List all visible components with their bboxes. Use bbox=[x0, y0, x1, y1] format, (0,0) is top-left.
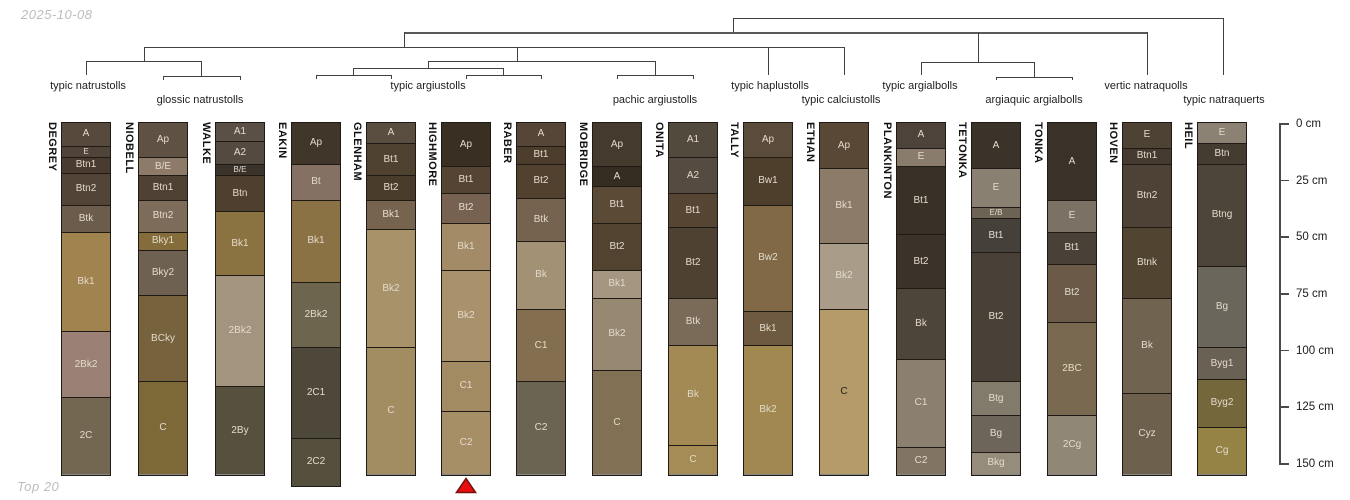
horizon-layer: Bt2 bbox=[517, 164, 565, 198]
dendrogram-branch-horizontal bbox=[466, 75, 542, 76]
dendrogram-branch-vertical bbox=[978, 32, 979, 62]
horizon-label: 2C bbox=[80, 431, 93, 441]
horizon-label: Bw1 bbox=[758, 176, 777, 186]
soil-profile-figure: 2025-10-08 Top 20 typic natrustollsgloss… bbox=[0, 0, 1350, 500]
dendrogram-branch-vertical bbox=[1223, 18, 1224, 75]
horizon-label: Bt1 bbox=[533, 150, 548, 160]
horizon-label: Btn2 bbox=[76, 184, 97, 194]
horizon-label: Bk bbox=[1141, 341, 1153, 351]
horizon-layer: E bbox=[897, 148, 945, 166]
horizon-layer: Btng bbox=[1198, 164, 1246, 266]
cluster-group-label: typic haplustolls bbox=[731, 80, 809, 92]
horizon-layer: Bk1 bbox=[367, 200, 415, 229]
dendrogram-branch-vertical bbox=[428, 61, 429, 68]
horizon-label: Cyz bbox=[1138, 429, 1155, 439]
horizon-label: Bk bbox=[687, 390, 699, 400]
horizon-label: A bbox=[993, 141, 1000, 151]
horizon-layer: Bg bbox=[1198, 266, 1246, 348]
horizon-layer: Bw2 bbox=[744, 205, 792, 312]
horizon-layer: C1 bbox=[897, 359, 945, 447]
horizon-label: C bbox=[689, 455, 696, 465]
horizon-layer: Ap bbox=[744, 123, 792, 157]
horizon-layer: Btk bbox=[517, 198, 565, 241]
horizon-layer: E/B bbox=[972, 207, 1020, 218]
horizon-label: E bbox=[1144, 130, 1151, 140]
horizon-layer: Ap bbox=[442, 123, 490, 166]
horizon-label: Bk2 bbox=[835, 271, 852, 281]
dendrogram-branch-horizontal bbox=[921, 62, 1035, 63]
profile-name-label: MOBRIDGE bbox=[577, 122, 589, 187]
horizon-layer: 2Bk2 bbox=[62, 331, 110, 397]
horizon-layer: A bbox=[897, 123, 945, 148]
horizon-label: Bt2 bbox=[913, 257, 928, 267]
horizon-label: 2Cg bbox=[1063, 440, 1081, 450]
cluster-group-label: glossic natrustolls bbox=[157, 94, 244, 106]
dendrogram-branch-vertical bbox=[844, 47, 845, 75]
depth-axis-tick-label: 125 cm bbox=[1296, 401, 1334, 413]
horizon-label: Bk2 bbox=[759, 405, 776, 415]
horizon-label: 2Bk2 bbox=[305, 310, 328, 320]
horizon-label: C bbox=[840, 387, 847, 397]
profile-column: ABt1Bt2BtkBkC1C2 bbox=[516, 122, 566, 476]
horizon-label: Bky1 bbox=[152, 236, 174, 246]
horizon-label: Bt1 bbox=[1064, 243, 1079, 253]
horizon-layer: Bw1 bbox=[744, 157, 792, 205]
horizon-label: A bbox=[538, 129, 545, 139]
horizon-layer: C bbox=[367, 347, 415, 474]
horizon-layer: Bt1 bbox=[669, 193, 717, 227]
horizon-label: Ap bbox=[460, 140, 472, 150]
horizon-layer: C2 bbox=[517, 381, 565, 474]
horizon-layer: C1 bbox=[517, 309, 565, 382]
dendrogram-branch-vertical bbox=[316, 75, 317, 79]
depth-axis-tick bbox=[1279, 180, 1289, 182]
horizon-label: C1 bbox=[460, 381, 473, 391]
horizon-layer: E bbox=[1198, 123, 1246, 143]
horizon-label: Ap bbox=[838, 141, 850, 151]
horizon-layer: Btn1 bbox=[1123, 148, 1171, 164]
horizon-layer: A bbox=[593, 166, 641, 186]
horizon-label: Bk1 bbox=[835, 201, 852, 211]
horizon-layer: Bk bbox=[517, 241, 565, 309]
dendrogram-branch-vertical bbox=[517, 47, 518, 61]
horizon-layer: Bk2 bbox=[744, 345, 792, 474]
horizon-layer: BCky bbox=[139, 295, 187, 381]
horizon-label: Bg bbox=[990, 429, 1002, 439]
profile-column: ABt1Bt2Bk1Bk2C bbox=[366, 122, 416, 476]
horizon-label: Btg bbox=[988, 394, 1003, 404]
dendrogram-branch-vertical bbox=[996, 77, 997, 80]
horizon-layer: 2Bk2 bbox=[292, 282, 340, 348]
depth-axis-tick-label: 75 cm bbox=[1296, 288, 1327, 300]
horizon-layer: Ap bbox=[820, 123, 868, 168]
horizon-label: Byg1 bbox=[1211, 359, 1234, 369]
horizon-layer: E bbox=[62, 146, 110, 157]
horizon-label: Byg2 bbox=[1211, 398, 1234, 408]
profile-column: ApBk1Bk2C bbox=[819, 122, 869, 476]
horizon-layer: Bk1 bbox=[62, 232, 110, 332]
dendrogram-branch-vertical bbox=[733, 18, 734, 32]
depth-axis-tick bbox=[1279, 293, 1289, 295]
dendrogram-branch-vertical bbox=[541, 75, 542, 79]
horizon-label: Ap bbox=[762, 135, 774, 145]
profile-column: AEBtn1Btn2BtkBk12Bk22C bbox=[61, 122, 111, 476]
horizon-layer: Btnk bbox=[1123, 227, 1171, 297]
horizon-layer: A1 bbox=[216, 123, 264, 141]
horizon-layer: 2By bbox=[216, 386, 264, 474]
horizon-layer: Bt bbox=[292, 164, 340, 200]
horizon-layer: B/E bbox=[216, 164, 264, 175]
horizon-label: Bkg bbox=[987, 458, 1004, 468]
profile-name-label: HIGHMORE bbox=[426, 122, 438, 187]
horizon-layer: Bt1 bbox=[593, 186, 641, 222]
horizon-layer: Bk bbox=[669, 345, 717, 445]
dendrogram-branch-vertical bbox=[921, 62, 922, 75]
horizon-layer: C bbox=[593, 370, 641, 474]
horizon-layer: Btn2 bbox=[1123, 164, 1171, 227]
profile-name-label: TALLY bbox=[728, 122, 740, 158]
horizon-label: C2 bbox=[915, 456, 928, 466]
horizon-label: Bt2 bbox=[458, 203, 473, 213]
horizon-label: Bt1 bbox=[609, 200, 624, 210]
horizon-label: A bbox=[1069, 157, 1076, 167]
horizon-layer: Bt1 bbox=[367, 143, 415, 175]
horizon-label: Btn1 bbox=[1137, 151, 1158, 161]
horizon-layer: C bbox=[820, 309, 868, 474]
horizon-label: A1 bbox=[687, 135, 699, 145]
horizon-label: Btn2 bbox=[1137, 191, 1158, 201]
dendrogram-branch-vertical bbox=[353, 68, 354, 75]
dendrogram-branch-vertical bbox=[503, 68, 504, 75]
horizon-layer: A bbox=[1048, 123, 1096, 200]
horizon-layer: Bk1 bbox=[442, 223, 490, 271]
profile-name-label: RABER bbox=[501, 122, 513, 164]
horizon-layer: C2 bbox=[442, 411, 490, 474]
horizon-label: C2 bbox=[535, 423, 548, 433]
dendrogram-branch-horizontal bbox=[86, 61, 202, 62]
cluster-group-label: argiaquic argialbolls bbox=[985, 94, 1082, 106]
dendrogram-branch-vertical bbox=[1147, 32, 1148, 75]
dendrogram-branch-vertical bbox=[404, 32, 405, 47]
depth-axis-tick bbox=[1279, 236, 1289, 238]
horizon-layer: Bt1 bbox=[517, 146, 565, 164]
horizon-label: C bbox=[387, 406, 394, 416]
horizon-layer: Btg bbox=[972, 381, 1020, 415]
horizon-label: Cg bbox=[1216, 446, 1229, 456]
cluster-group-label: typic argiustolls bbox=[390, 80, 465, 92]
horizon-layer: A2 bbox=[669, 157, 717, 193]
horizon-label: Btk bbox=[534, 215, 548, 225]
horizon-layer: Btn1 bbox=[139, 175, 187, 200]
depth-axis-tick-label: 0 cm bbox=[1296, 118, 1321, 130]
horizon-layer: C2 bbox=[897, 447, 945, 474]
horizon-layer: Bt1 bbox=[897, 166, 945, 234]
horizon-label: Bg bbox=[1216, 302, 1228, 312]
horizon-label: Bk1 bbox=[457, 242, 474, 252]
profile-name-label: ONITA bbox=[653, 122, 665, 158]
horizon-layer: Bt2 bbox=[367, 175, 415, 200]
profile-name-label: NIOBELL bbox=[123, 122, 135, 174]
profile-column: AEBt1Bt22BC2Cg bbox=[1047, 122, 1097, 476]
horizon-label: A2 bbox=[687, 171, 699, 181]
dendrogram-branch-vertical bbox=[86, 61, 87, 75]
depth-axis-tick bbox=[1279, 463, 1289, 465]
dendrogram-branch-vertical bbox=[240, 76, 241, 80]
dendrogram-branch-vertical bbox=[693, 75, 694, 79]
horizon-layer: Bt1 bbox=[972, 218, 1020, 252]
horizon-label: Ap bbox=[611, 140, 623, 150]
horizon-label: E bbox=[993, 183, 1000, 193]
horizon-layer: 2Cg bbox=[1048, 415, 1096, 474]
horizon-layer: 2C2 bbox=[292, 438, 340, 486]
cluster-group-label: vertic natraquolls bbox=[1104, 80, 1187, 92]
horizon-layer: A bbox=[62, 123, 110, 146]
horizon-label: Btn2 bbox=[153, 211, 174, 221]
dendrogram-branch-vertical bbox=[617, 75, 618, 79]
dendrogram-branch-horizontal bbox=[353, 68, 504, 69]
horizon-layer: Btk bbox=[669, 298, 717, 346]
dendrogram-branch-vertical bbox=[163, 76, 164, 80]
horizon-label: B/E bbox=[155, 162, 171, 172]
dendrogram-branch-horizontal bbox=[617, 75, 694, 76]
dendrogram-branch-horizontal bbox=[144, 47, 845, 48]
cluster-group-label: pachic argiustolls bbox=[613, 94, 697, 106]
horizon-label: Bk2 bbox=[608, 329, 625, 339]
horizon-label: Bt2 bbox=[609, 242, 624, 252]
horizon-label: Bk1 bbox=[231, 239, 248, 249]
horizon-layer: C1 bbox=[442, 361, 490, 411]
dendrogram-branch-horizontal bbox=[428, 61, 656, 62]
profile-name-label: TETONKA bbox=[956, 122, 968, 178]
horizon-layer: Cyz bbox=[1123, 393, 1171, 475]
horizon-label: Bk bbox=[915, 319, 927, 329]
horizon-layer: Bt2 bbox=[442, 193, 490, 222]
horizon-label: Bt2 bbox=[685, 258, 700, 268]
horizon-label: Bt1 bbox=[913, 196, 928, 206]
horizon-layer: Cg bbox=[1198, 427, 1246, 475]
horizon-label: Btn1 bbox=[153, 183, 174, 193]
horizon-layer: Bt2 bbox=[897, 234, 945, 288]
dendrogram-branch-horizontal bbox=[316, 75, 392, 76]
horizon-layer: Bk2 bbox=[820, 243, 868, 309]
date-label: 2025-10-08 bbox=[21, 7, 93, 22]
cluster-group-label: typic argialbolls bbox=[882, 80, 957, 92]
depth-axis-tick-label: 50 cm bbox=[1296, 231, 1327, 243]
horizon-layer: Btn2 bbox=[62, 173, 110, 205]
horizon-layer: C bbox=[669, 445, 717, 474]
horizon-label: Ap bbox=[157, 135, 169, 145]
profile-name-label: TONKA bbox=[1032, 122, 1044, 163]
horizon-label: Btnk bbox=[1137, 258, 1157, 268]
horizon-layer: E bbox=[1123, 123, 1171, 148]
cluster-group-label: typic natraquerts bbox=[1183, 94, 1264, 106]
horizon-layer: Bk1 bbox=[292, 200, 340, 282]
horizon-layer: A bbox=[972, 123, 1020, 168]
horizon-label: Bky2 bbox=[152, 268, 174, 278]
profile-name-label: PLANKINTON bbox=[881, 122, 893, 199]
depth-axis-tick bbox=[1279, 406, 1289, 408]
horizon-label: A2 bbox=[234, 148, 246, 158]
horizon-layer: Byg1 bbox=[1198, 347, 1246, 379]
horizon-label: 2C1 bbox=[307, 388, 325, 398]
profile-column: ApABt1Bt2Bk1Bk2C bbox=[592, 122, 642, 476]
profile-name-label: EAKIN bbox=[276, 122, 288, 159]
horizon-layer: Bt1 bbox=[442, 166, 490, 193]
horizon-label: A1 bbox=[234, 127, 246, 137]
horizon-label: Bt2 bbox=[533, 176, 548, 186]
horizon-layer: Ap bbox=[292, 123, 340, 164]
horizon-layer: Ap bbox=[139, 123, 187, 157]
horizon-label: 2BC bbox=[1062, 364, 1081, 374]
horizon-layer: Bt2 bbox=[669, 227, 717, 297]
horizon-layer: A2 bbox=[216, 141, 264, 164]
profile-name-label: HEIL bbox=[1182, 122, 1194, 149]
horizon-layer: Bk2 bbox=[442, 270, 490, 361]
dendrogram-branch-horizontal bbox=[163, 76, 241, 77]
horizon-label: Bk1 bbox=[608, 279, 625, 289]
profile-column: AEBt1Bt2BkC1C2 bbox=[896, 122, 946, 476]
horizon-label: Bt2 bbox=[1064, 288, 1079, 298]
dendrogram-branch-vertical bbox=[201, 61, 202, 76]
horizon-layer: 2Bk2 bbox=[216, 275, 264, 386]
horizon-label: Bk1 bbox=[382, 210, 399, 220]
horizon-layer: Bk2 bbox=[367, 229, 415, 347]
horizon-label: A bbox=[388, 128, 395, 138]
dendrogram-branch-horizontal bbox=[404, 32, 1148, 34]
horizon-label: 2Bk2 bbox=[75, 360, 98, 370]
horizon-label: C1 bbox=[535, 341, 548, 351]
horizon-label: Btng bbox=[1212, 210, 1233, 220]
profile-column: ApB/EBtn1Btn2Bky1Bky2BCkyC bbox=[138, 122, 188, 476]
footer-top20-label: Top 20 bbox=[17, 479, 59, 494]
profile-column: A1A2B/EBtnBk12Bk22By bbox=[215, 122, 265, 476]
horizon-layer: Btk bbox=[62, 205, 110, 232]
horizon-label: Btk bbox=[686, 317, 700, 327]
horizon-label: Bt1 bbox=[988, 231, 1003, 241]
dendrogram-branch-vertical bbox=[1034, 62, 1035, 77]
horizon-layer: E bbox=[972, 168, 1020, 207]
horizon-layer: Bk1 bbox=[593, 270, 641, 297]
horizon-label: Bk1 bbox=[759, 324, 776, 334]
horizon-layer: Bg bbox=[972, 415, 1020, 451]
horizon-layer: Bt2 bbox=[593, 223, 641, 271]
dendrogram-branch-vertical bbox=[466, 75, 467, 79]
horizon-layer: E bbox=[1048, 200, 1096, 232]
horizon-layer: Bky2 bbox=[139, 250, 187, 295]
horizon-label: 2C2 bbox=[307, 457, 325, 467]
horizon-layer: Byg2 bbox=[1198, 379, 1246, 427]
profile-column: EBtn1Btn2BtnkBkCyz bbox=[1122, 122, 1172, 476]
horizon-layer: 2C bbox=[62, 397, 110, 474]
profile-name-label: ETHAN bbox=[804, 122, 816, 162]
profile-column: ApBt1Bt2Bk1Bk2C1C2 bbox=[441, 122, 491, 476]
dendrogram-branch-vertical bbox=[768, 47, 769, 75]
horizon-layer: Bk1 bbox=[744, 311, 792, 345]
horizon-label: Btn bbox=[1214, 149, 1229, 159]
horizon-layer: Bkg bbox=[972, 452, 1020, 475]
horizon-label: C1 bbox=[915, 398, 928, 408]
horizon-label: Bk bbox=[535, 270, 547, 280]
horizon-label: 2Bk2 bbox=[229, 326, 252, 336]
horizon-label: E bbox=[83, 148, 88, 156]
horizon-layer: Btn bbox=[1198, 143, 1246, 163]
depth-axis-tick-label: 25 cm bbox=[1296, 175, 1327, 187]
horizon-layer: Bk bbox=[897, 288, 945, 358]
horizon-layer: Bk bbox=[1123, 298, 1171, 393]
profile-column: ApBtBk12Bk22C12C2 bbox=[291, 122, 341, 487]
horizon-label: BCky bbox=[151, 334, 175, 344]
horizon-label: E/B bbox=[990, 209, 1003, 217]
horizon-label: E bbox=[1069, 211, 1076, 221]
horizon-label: Bt2 bbox=[383, 183, 398, 193]
horizon-layer: Btn1 bbox=[62, 157, 110, 173]
dendrogram-branch-vertical bbox=[391, 75, 392, 79]
cluster-group-label: typic calciustolls bbox=[802, 94, 881, 106]
horizon-label: Bk1 bbox=[307, 236, 324, 246]
horizon-layer: A bbox=[517, 123, 565, 146]
horizon-label: C bbox=[613, 418, 620, 428]
horizon-label: Bt1 bbox=[458, 175, 473, 185]
dendrogram-branch-horizontal bbox=[733, 18, 1224, 19]
profile-column: EBtnBtngBgByg1Byg2Cg bbox=[1197, 122, 1247, 476]
depth-axis-tick bbox=[1279, 350, 1289, 352]
horizon-layer: Bk1 bbox=[820, 168, 868, 243]
horizon-layer: Btn2 bbox=[139, 200, 187, 232]
depth-axis-tick bbox=[1279, 123, 1289, 125]
dendrogram-branch-vertical bbox=[144, 47, 145, 61]
horizon-layer: Bk2 bbox=[593, 298, 641, 371]
horizon-label: Bk1 bbox=[77, 277, 94, 287]
depth-axis-tick-label: 100 cm bbox=[1296, 345, 1334, 357]
horizon-label: E bbox=[918, 152, 925, 162]
horizon-label: A bbox=[918, 130, 925, 140]
horizon-layer: 2C1 bbox=[292, 347, 340, 438]
horizon-layer: C bbox=[139, 381, 187, 474]
horizon-layer: Bt1 bbox=[1048, 232, 1096, 264]
horizon-layer: Ap bbox=[593, 123, 641, 166]
horizon-label: Bt2 bbox=[988, 312, 1003, 322]
horizon-label: B/E bbox=[234, 166, 247, 174]
horizon-label: Bk2 bbox=[457, 311, 474, 321]
horizon-layer: B/E bbox=[139, 157, 187, 175]
horizon-label: Bt bbox=[311, 177, 320, 187]
profile-name-label: DEGREY bbox=[46, 122, 58, 171]
horizon-layer: A1 bbox=[669, 123, 717, 157]
horizon-label: A bbox=[614, 172, 621, 182]
profile-column: AEE/BBt1Bt2BtgBgBkg bbox=[971, 122, 1021, 476]
horizon-label: Btn1 bbox=[76, 160, 97, 170]
horizon-layer: A bbox=[367, 123, 415, 143]
dendrogram-branch-horizontal bbox=[996, 77, 1073, 78]
horizon-label: A bbox=[83, 129, 90, 139]
profile-name-label: HOVEN bbox=[1107, 122, 1119, 164]
profile-name-label: WALKE bbox=[200, 122, 212, 164]
horizon-layer: Bt2 bbox=[972, 252, 1020, 381]
horizon-label: Bt1 bbox=[685, 206, 700, 216]
selected-profile-marker-icon bbox=[453, 476, 479, 496]
horizon-label: Bw2 bbox=[758, 253, 777, 263]
profile-column: A1A2Bt1Bt2BtkBkC bbox=[668, 122, 718, 476]
horizon-label: Ap bbox=[310, 138, 322, 148]
dendrogram-branch-vertical bbox=[1072, 77, 1073, 80]
horizon-label: 2By bbox=[231, 426, 248, 436]
cluster-group-label: typic natrustolls bbox=[50, 80, 126, 92]
profile-column: ApBw1Bw2Bk1Bk2 bbox=[743, 122, 793, 476]
horizon-layer: 2BC bbox=[1048, 322, 1096, 415]
horizon-layer: Bky1 bbox=[139, 232, 187, 250]
horizon-label: Bk2 bbox=[382, 284, 399, 294]
horizon-label: E bbox=[1219, 128, 1226, 138]
